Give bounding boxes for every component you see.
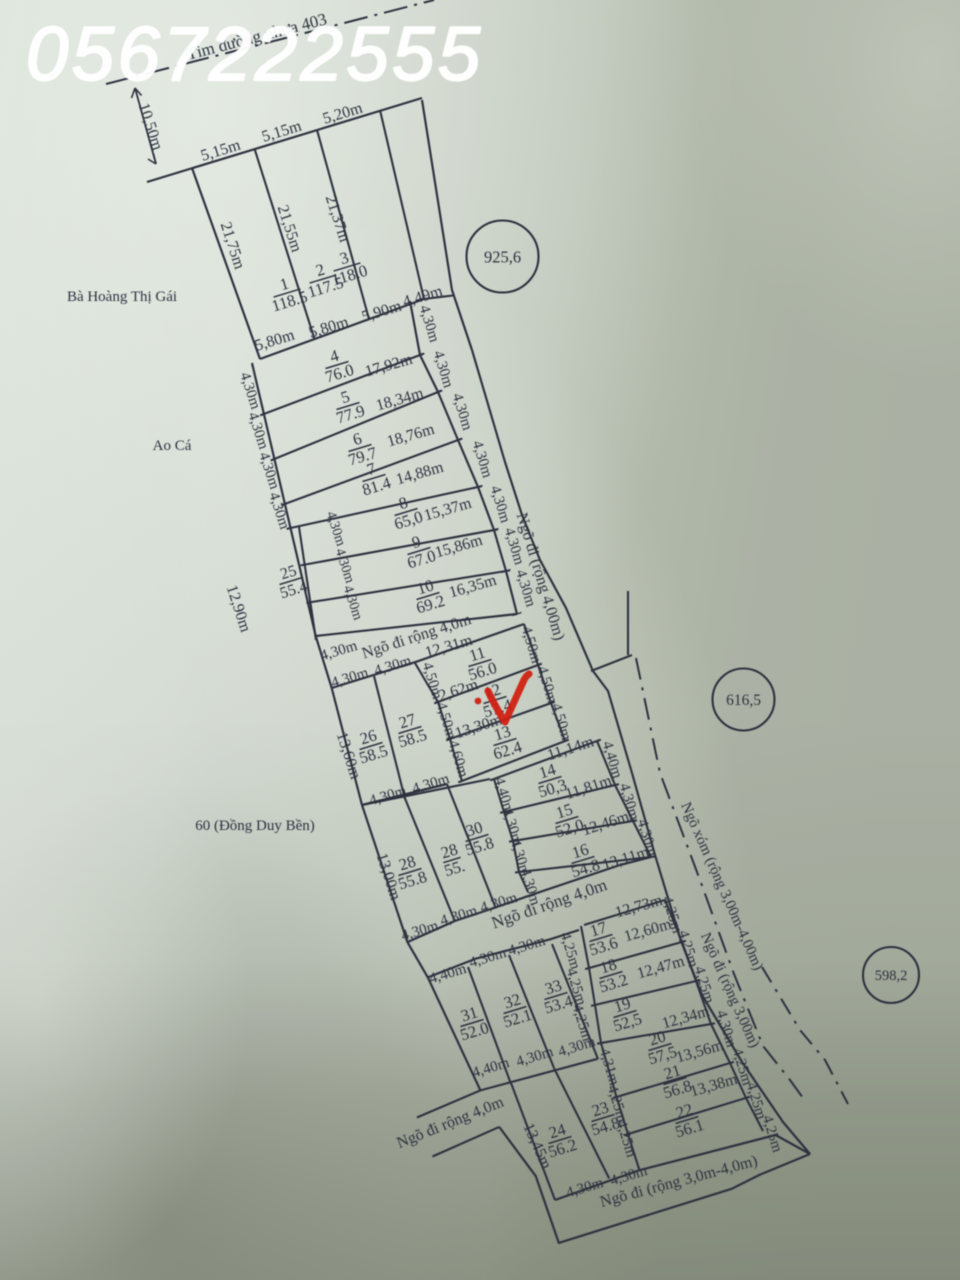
svg-text:Ao Cá: Ao Cá: [153, 438, 192, 454]
svg-text:598,2: 598,2: [875, 968, 908, 984]
svg-text:Bà Hoàng Thị Gái: Bà Hoàng Thị Gái: [67, 289, 177, 305]
svg-text:925,6: 925,6: [484, 247, 521, 266]
svg-text:616,5: 616,5: [726, 692, 761, 709]
svg-text:60 (Đồng Duy Bền): 60 (Đồng Duy Bền): [195, 818, 315, 834]
svg-text:0567222555: 0567222555: [26, 12, 484, 97]
